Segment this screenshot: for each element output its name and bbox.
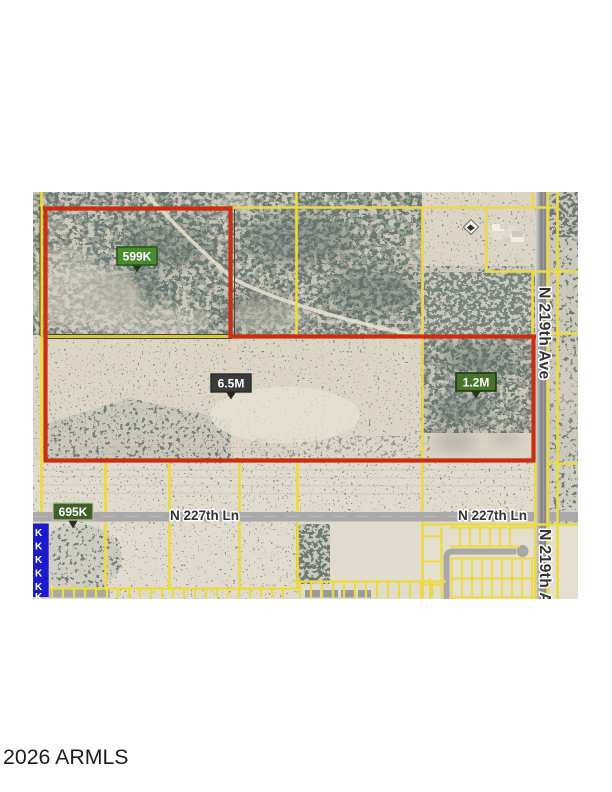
svg-text:599K: 599K xyxy=(123,250,152,264)
svg-text:K: K xyxy=(35,569,43,580)
svg-text:N 227th Ln: N 227th Ln xyxy=(458,508,527,523)
svg-text:695K: 695K xyxy=(59,505,88,519)
svg-text:N 219th Ave: N 219th Ave xyxy=(536,529,553,622)
svg-text:K: K xyxy=(35,555,43,566)
svg-text:K: K xyxy=(35,542,43,553)
svg-text:K: K xyxy=(35,528,43,539)
svg-text:N 227th Ln: N 227th Ln xyxy=(170,508,239,523)
svg-text:1.2M: 1.2M xyxy=(463,376,490,390)
svg-text:2026 ARMLS: 2026 ARMLS xyxy=(3,745,129,769)
svg-text:6.5M: 6.5M xyxy=(218,377,245,391)
svg-text:N 219th Ave: N 219th Ave xyxy=(536,287,553,380)
svg-text:K: K xyxy=(35,592,43,603)
